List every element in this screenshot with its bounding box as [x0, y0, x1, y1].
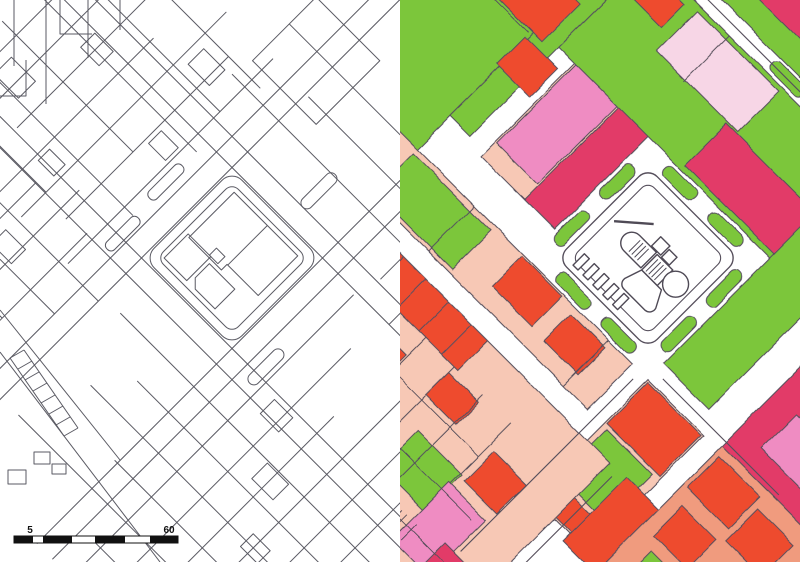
right-map-panel	[400, 0, 800, 562]
scale-label-end: 60	[163, 525, 175, 536]
left-map-panel: 5 60	[0, 0, 400, 562]
scanned-map-spread: 5 60	[0, 0, 800, 562]
scale-label-start: 5	[27, 525, 33, 536]
